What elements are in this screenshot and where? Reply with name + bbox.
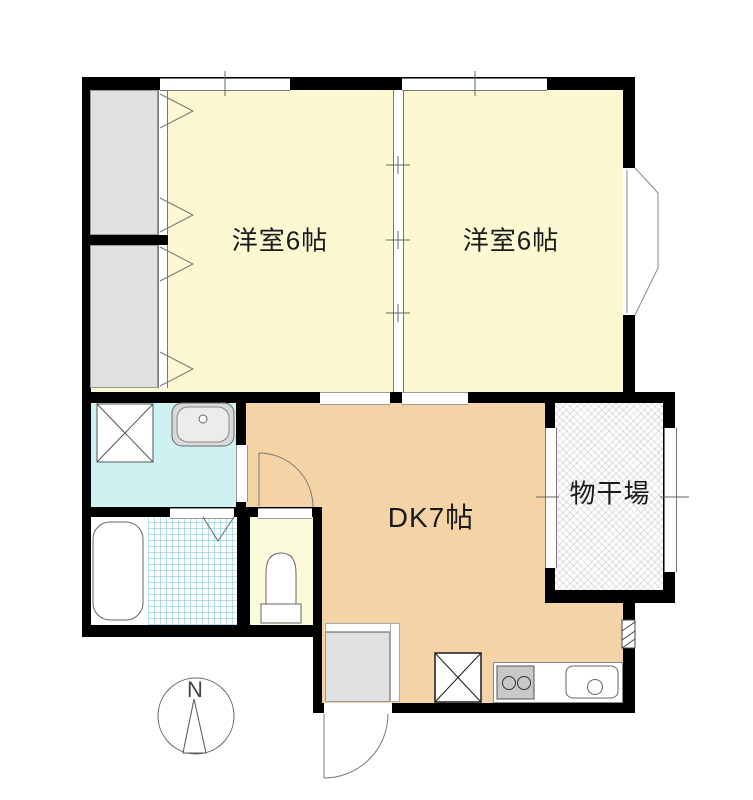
toilet-icon [261, 553, 301, 623]
sliding-partition-icon [386, 156, 410, 322]
north-compass-icon: N [158, 677, 234, 754]
refrigerator-space-icon [435, 653, 481, 702]
window-tick-icon [225, 71, 689, 497]
entrance-door-arc-icon [324, 714, 388, 778]
hinged-door-arc-icon [259, 453, 313, 507]
room-label-bedroom-1: 洋室6帖 [232, 221, 328, 258]
room-label-bedroom-2: 洋室6帖 [463, 221, 559, 258]
kitchen-sink-icon [566, 666, 618, 698]
stove-burners-icon [497, 666, 534, 699]
compass-north-label: N [187, 677, 203, 702]
washbasin-icon [172, 403, 234, 446]
bathtub-icon [93, 522, 143, 620]
fixture-overlay: N [0, 0, 753, 800]
bay-window-icon [627, 168, 658, 315]
floor-plan: N 洋室6帖 洋室6帖 DK7帖 物干場 [0, 0, 753, 800]
closet-folding-door-icon [160, 94, 193, 386]
room-label-dining-kitchen: DK7帖 [388, 496, 474, 536]
washing-machine-pan-icon [97, 404, 153, 462]
pipe-space-icon [622, 620, 635, 648]
bifold-bath-door-icon [203, 517, 234, 541]
room-label-drying-area: 物干場 [569, 474, 650, 511]
